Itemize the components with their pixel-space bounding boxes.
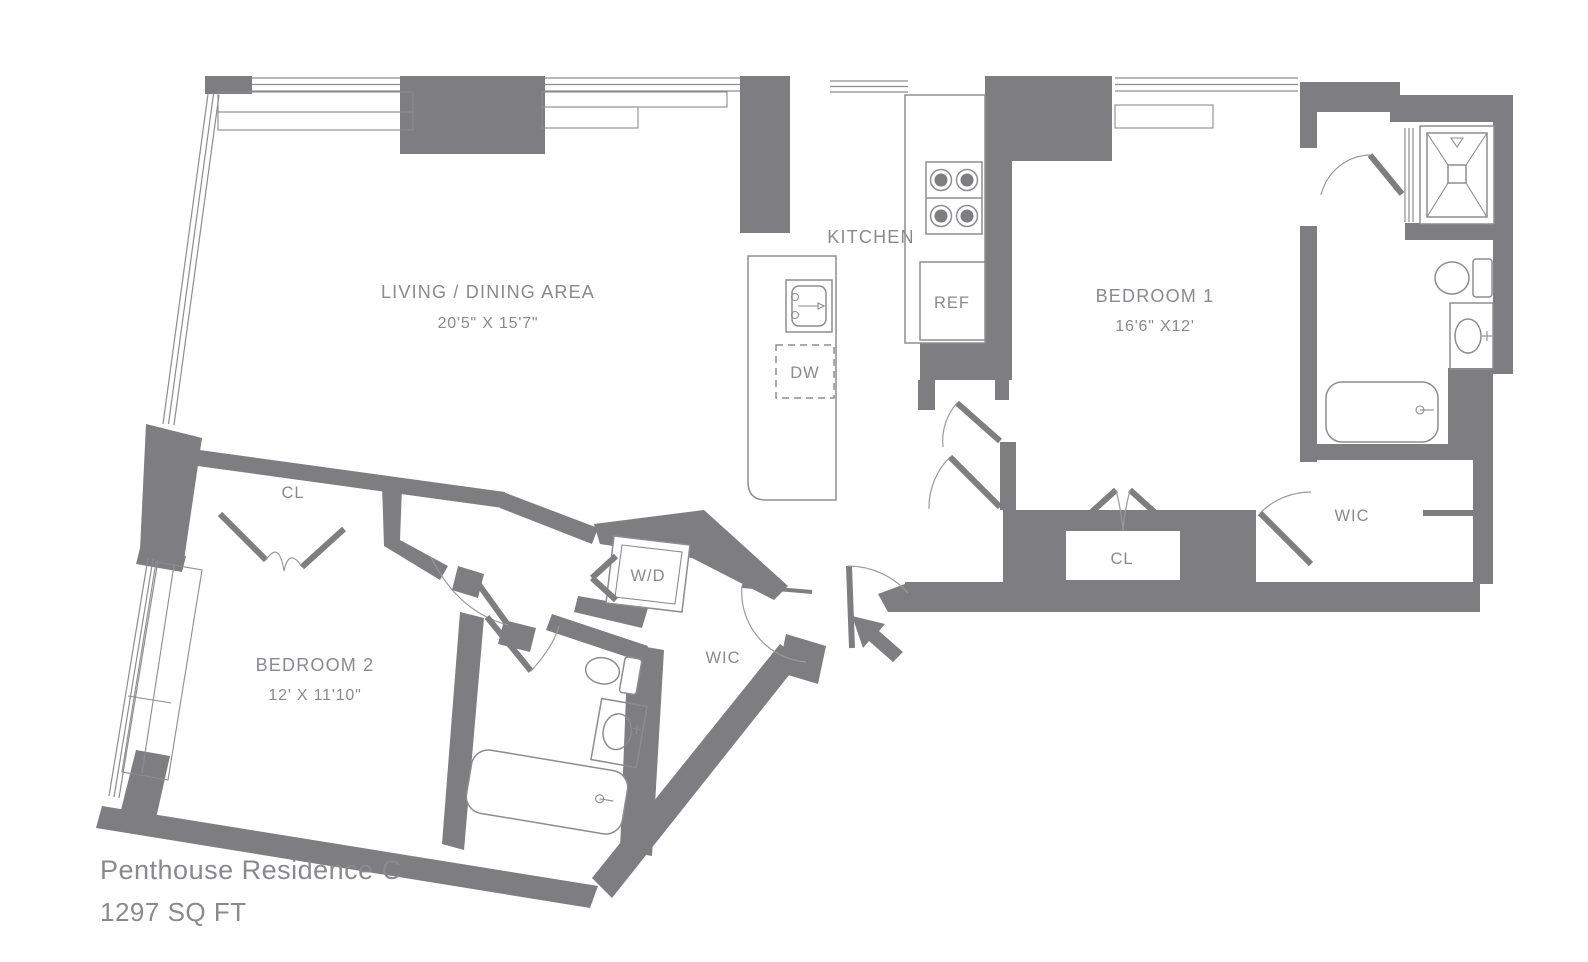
bedroom1-label: BEDROOM 1 (1096, 286, 1215, 306)
window (252, 78, 400, 91)
shower-glass (1405, 128, 1413, 222)
wall-segment (154, 444, 505, 508)
wall-segment (995, 380, 1009, 400)
window (545, 78, 740, 91)
wall-segment (1000, 442, 1016, 510)
bathtub (464, 747, 630, 836)
entry-door-leaf (849, 566, 852, 648)
window-counter (542, 107, 638, 128)
entry-arrow-icon (852, 616, 903, 662)
wall-segment (878, 584, 905, 612)
wall-segment (1305, 444, 1448, 460)
wall-segment (985, 76, 1112, 161)
wic-primary-label: WIC (1334, 507, 1369, 525)
closet-door-leaf (302, 529, 344, 567)
door-leaf (950, 457, 1000, 507)
floor-plan-page: LIVING / DINING AREA 20'5" X 15'7" KITCH… (0, 0, 1588, 962)
wall-segment (920, 343, 985, 380)
closet-bedroom1-label: CL (1110, 550, 1133, 568)
window-counter (542, 92, 727, 107)
wall-segment (905, 582, 1005, 612)
bathroom-sink (1450, 303, 1493, 369)
bedroom2-label: BEDROOM 2 (256, 655, 375, 675)
wall-segment (740, 76, 790, 233)
wall-segment (205, 76, 252, 94)
wall-segment (400, 76, 545, 154)
window-counter (218, 92, 413, 112)
door-leaf (1370, 155, 1402, 194)
floor-plan: LIVING / DINING AREA 20'5" X 15'7" KITCH… (0, 0, 1588, 962)
bedroom1-builtin (1115, 105, 1213, 128)
second-bathroom (464, 650, 647, 837)
wall-segment (1405, 223, 1497, 240)
shower (1420, 126, 1494, 224)
wall-segment (442, 612, 484, 850)
wic-primary-floor (1317, 516, 1473, 582)
stove (926, 162, 982, 234)
wall-segment (918, 380, 935, 410)
wic-hall-label: WIC (705, 649, 740, 667)
window-counter (218, 112, 413, 130)
washer-dryer-label: W/D (630, 567, 665, 585)
door-swing-arc (266, 552, 284, 571)
door-leaf (957, 403, 1000, 441)
door-swing-arc (1321, 155, 1370, 195)
wall-segment (985, 161, 1012, 380)
window (163, 94, 219, 425)
refrigerator-label: REF (934, 294, 970, 312)
window (1115, 78, 1298, 91)
wall-segment (1493, 112, 1513, 374)
door-opening (1298, 148, 1319, 226)
plan-area: 1297 SQ FT (100, 897, 247, 927)
bathtub (1326, 382, 1438, 442)
door-swing-arc (943, 403, 957, 447)
closet-door-leaf (220, 514, 266, 560)
toilet (1435, 259, 1492, 297)
window (830, 81, 908, 92)
living-room-label: LIVING / DINING AREA (381, 282, 595, 302)
wall-segment (1448, 368, 1493, 460)
dishwasher-label: DW (790, 364, 820, 382)
wall-segment (140, 424, 202, 560)
door-swing-arc (284, 558, 302, 571)
closet-bedroom2-label: CL (281, 484, 304, 502)
wall-segment (1300, 90, 1317, 462)
bedroom1-dims: 16'6" X12' (1115, 318, 1194, 335)
living-room-dims: 20'5" X 15'7" (438, 315, 539, 332)
bedroom2-dims: 12' X 11'10" (268, 687, 361, 704)
kitchen-label: KITCHEN (827, 227, 914, 247)
plan-title: Penthouse Residence C (100, 855, 402, 885)
wall-segment (500, 492, 598, 544)
door-swing-arc (929, 457, 950, 509)
